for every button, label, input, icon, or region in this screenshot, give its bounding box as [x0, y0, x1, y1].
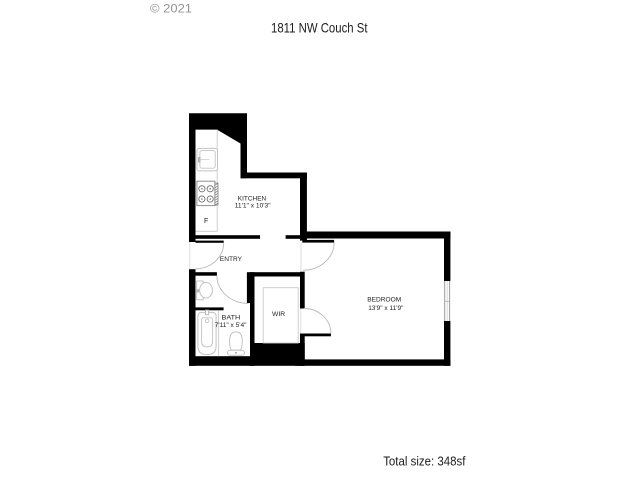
svg-text:© 2021: © 2021 — [150, 2, 192, 16]
svg-text:BEDROOM: BEDROOM — [367, 297, 401, 304]
svg-text:1811 NW Couch St: 1811 NW Couch St — [271, 21, 368, 36]
svg-text:ENTRY: ENTRY — [220, 256, 243, 263]
svg-text:WIR: WIR — [272, 311, 285, 318]
svg-text:11'1" x 10'3": 11'1" x 10'3" — [235, 203, 271, 210]
svg-text:BATH: BATH — [222, 315, 241, 322]
svg-text:F: F — [204, 218, 208, 225]
svg-text:13'9" x 11'9": 13'9" x 11'9" — [368, 305, 404, 312]
svg-text:Total size: 348sf: Total size: 348sf — [383, 453, 466, 468]
svg-text:7'11" x 5'4": 7'11" x 5'4" — [215, 322, 247, 329]
svg-text:KITCHEN: KITCHEN — [238, 196, 266, 203]
